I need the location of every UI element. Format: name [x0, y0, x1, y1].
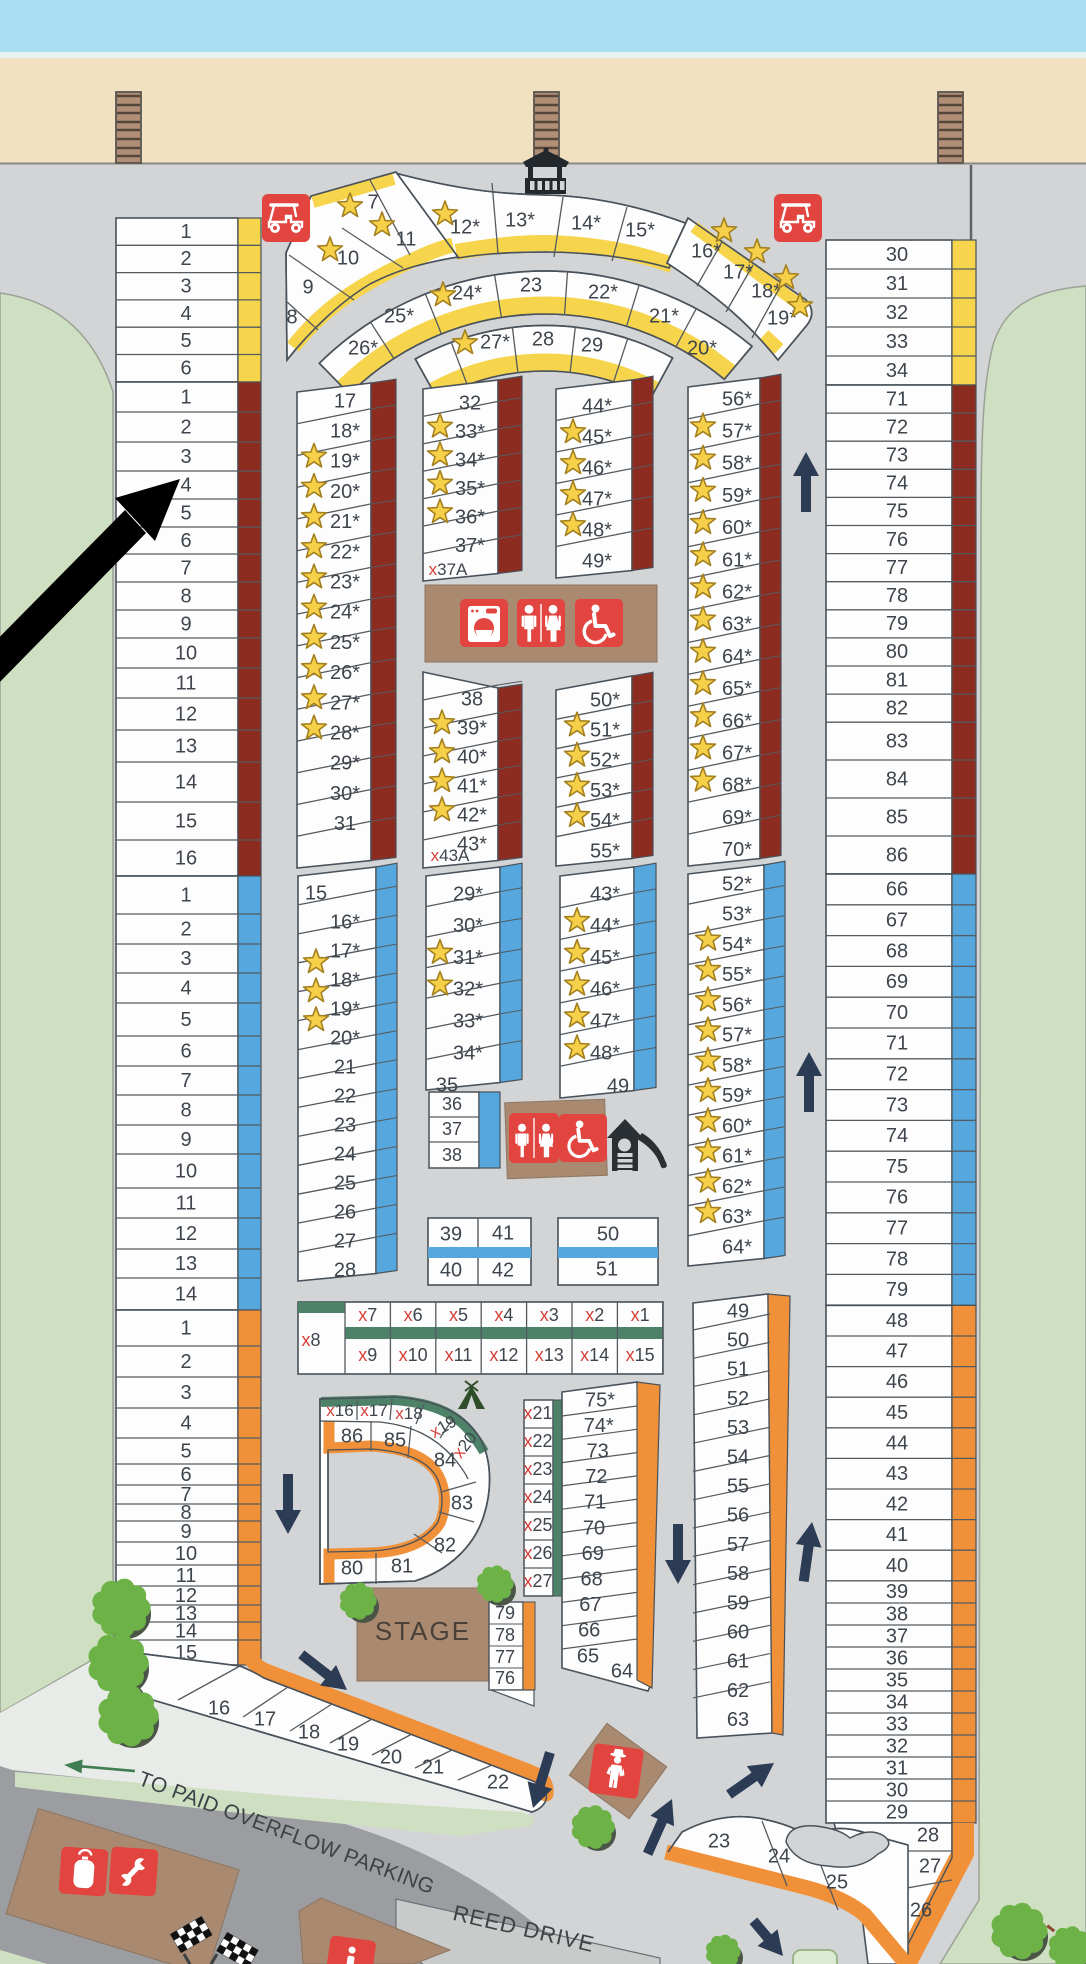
svg-text:22: 22 [487, 1771, 509, 1793]
svg-text:31: 31 [334, 813, 356, 835]
svg-text:41: 41 [492, 1222, 514, 1244]
svg-text:72: 72 [886, 1063, 908, 1085]
svg-text:20*: 20* [330, 1027, 360, 1049]
svg-text:21*: 21* [649, 305, 679, 327]
svg-text:x5: x5 [449, 1305, 468, 1325]
svg-text:68*: 68* [722, 775, 752, 797]
svg-text:63: 63 [727, 1709, 749, 1731]
svg-text:20: 20 [380, 1746, 402, 1768]
svg-text:68: 68 [886, 940, 908, 962]
svg-text:53: 53 [727, 1417, 749, 1439]
svg-text:10: 10 [175, 1160, 197, 1182]
svg-text:38: 38 [442, 1145, 462, 1165]
svg-text:4: 4 [180, 303, 191, 325]
svg-text:4: 4 [180, 474, 191, 496]
svg-text:26*: 26* [348, 337, 378, 359]
svg-text:77: 77 [886, 1217, 908, 1239]
svg-text:24: 24 [334, 1143, 356, 1165]
svg-text:82: 82 [434, 1534, 456, 1556]
svg-text:69*: 69* [722, 807, 752, 829]
svg-text:47: 47 [886, 1341, 908, 1363]
svg-text:5: 5 [180, 502, 191, 524]
svg-text:58: 58 [727, 1563, 749, 1585]
svg-text:40: 40 [886, 1555, 908, 1577]
svg-text:19*: 19* [330, 998, 360, 1020]
svg-text:28: 28 [917, 1824, 939, 1846]
svg-text:24*: 24* [452, 282, 482, 304]
svg-text:26: 26 [910, 1899, 932, 1921]
svg-text:33*: 33* [453, 1010, 483, 1032]
svg-text:3: 3 [180, 948, 191, 970]
svg-text:65: 65 [577, 1645, 599, 1667]
svg-text:18*: 18* [751, 280, 781, 302]
svg-text:42*: 42* [457, 804, 487, 826]
svg-text:15: 15 [175, 810, 197, 832]
svg-text:28: 28 [532, 328, 554, 350]
svg-text:70: 70 [886, 1002, 908, 1024]
svg-text:9: 9 [180, 1129, 191, 1151]
svg-text:17: 17 [254, 1708, 276, 1730]
svg-text:56*: 56* [722, 388, 752, 410]
svg-text:x4: x4 [494, 1305, 513, 1325]
svg-text:79: 79 [886, 613, 908, 635]
svg-text:45*: 45* [590, 947, 620, 969]
svg-text:80: 80 [341, 1557, 363, 1579]
svg-text:34*: 34* [455, 449, 485, 471]
svg-text:35*: 35* [455, 478, 485, 500]
svg-text:32: 32 [459, 392, 481, 414]
svg-text:58*: 58* [722, 1055, 752, 1077]
svg-text:20*: 20* [330, 481, 360, 503]
svg-text:16: 16 [175, 847, 197, 869]
svg-text:x10: x10 [399, 1345, 428, 1365]
svg-text:74: 74 [886, 1125, 908, 1147]
svg-text:71: 71 [886, 1033, 908, 1055]
svg-text:39: 39 [440, 1223, 462, 1245]
svg-text:49*: 49* [582, 550, 612, 572]
svg-text:11: 11 [396, 228, 417, 250]
svg-text:21: 21 [422, 1756, 444, 1778]
svg-text:59: 59 [727, 1592, 749, 1614]
svg-text:1: 1 [180, 386, 191, 408]
svg-text:33*: 33* [455, 421, 485, 443]
svg-text:32*: 32* [453, 979, 483, 1001]
svg-text:37*: 37* [455, 535, 485, 557]
svg-text:11: 11 [176, 672, 197, 694]
svg-text:21*: 21* [330, 511, 360, 533]
svg-text:59*: 59* [722, 1085, 752, 1107]
svg-text:17*: 17* [330, 940, 360, 962]
svg-text:19: 19 [337, 1733, 359, 1755]
svg-text:x15: x15 [626, 1345, 655, 1365]
svg-text:32: 32 [886, 302, 908, 324]
svg-text:28*: 28* [330, 722, 360, 744]
svg-text:3: 3 [180, 1382, 191, 1404]
svg-text:6: 6 [180, 1464, 191, 1486]
svg-text:30: 30 [886, 1779, 908, 1801]
svg-text:1: 1 [180, 221, 191, 243]
svg-text:78: 78 [495, 1625, 515, 1645]
svg-text:41*: 41* [457, 775, 487, 797]
svg-text:73: 73 [886, 445, 908, 467]
svg-text:13*: 13* [505, 209, 535, 231]
svg-text:36: 36 [886, 1647, 908, 1669]
svg-text:29*: 29* [453, 883, 483, 905]
svg-text:8: 8 [180, 585, 191, 607]
svg-text:53*: 53* [590, 780, 620, 802]
svg-text:8: 8 [286, 306, 297, 328]
svg-text:27: 27 [334, 1230, 356, 1252]
svg-text:x22: x22 [523, 1431, 552, 1451]
svg-text:67: 67 [886, 909, 908, 931]
svg-text:57: 57 [727, 1534, 749, 1556]
svg-text:18*: 18* [330, 420, 360, 442]
svg-text:33: 33 [886, 331, 908, 353]
svg-text:51*: 51* [590, 719, 620, 741]
svg-text:x12: x12 [489, 1345, 518, 1365]
svg-text:27: 27 [919, 1855, 941, 1877]
svg-text:x3: x3 [540, 1305, 559, 1325]
svg-text:x27: x27 [523, 1571, 552, 1591]
svg-text:38: 38 [461, 688, 483, 710]
svg-text:29: 29 [581, 334, 603, 356]
svg-text:25*: 25* [384, 305, 414, 327]
svg-text:11: 11 [176, 1565, 197, 1587]
svg-text:16*: 16* [691, 240, 721, 262]
svg-text:5: 5 [180, 1009, 191, 1031]
svg-text:48: 48 [886, 1310, 908, 1332]
svg-text:69: 69 [582, 1543, 604, 1565]
svg-text:66: 66 [578, 1620, 600, 1642]
svg-text:49: 49 [607, 1075, 629, 1097]
svg-text:31: 31 [886, 273, 908, 295]
svg-text:x18: x18 [395, 1404, 422, 1423]
svg-text:2: 2 [180, 918, 191, 940]
svg-text:27*: 27* [330, 692, 360, 714]
svg-text:54: 54 [727, 1446, 749, 1468]
svg-text:26: 26 [334, 1201, 356, 1223]
svg-text:29: 29 [886, 1801, 908, 1823]
svg-text:32: 32 [886, 1735, 908, 1757]
svg-text:31*: 31* [453, 947, 483, 969]
svg-text:26*: 26* [330, 662, 360, 684]
svg-text:17*: 17* [723, 261, 753, 283]
svg-text:52: 52 [727, 1388, 749, 1410]
svg-text:55*: 55* [722, 964, 752, 986]
svg-text:37: 37 [886, 1625, 908, 1647]
svg-text:14*: 14* [571, 212, 601, 234]
svg-text:1: 1 [180, 1317, 191, 1339]
svg-text:x2: x2 [585, 1305, 604, 1325]
svg-text:36*: 36* [455, 506, 485, 528]
svg-text:4: 4 [180, 1412, 191, 1434]
svg-text:10: 10 [175, 642, 197, 664]
svg-text:24*: 24* [330, 602, 360, 624]
svg-text:5: 5 [180, 1440, 191, 1462]
svg-text:63*: 63* [722, 1206, 752, 1228]
svg-text:x43A: x43A [431, 846, 470, 865]
svg-text:x14: x14 [580, 1345, 609, 1365]
svg-text:72: 72 [585, 1466, 607, 1488]
svg-text:35: 35 [886, 1669, 908, 1691]
svg-text:2: 2 [180, 416, 191, 438]
svg-text:75: 75 [886, 1156, 908, 1178]
svg-text:60: 60 [727, 1621, 749, 1643]
svg-text:x1: x1 [631, 1305, 650, 1325]
svg-text:24: 24 [768, 1845, 790, 1867]
svg-text:18*: 18* [330, 969, 360, 991]
svg-text:57*: 57* [722, 1025, 752, 1047]
svg-text:45: 45 [886, 1402, 908, 1424]
svg-text:16*: 16* [330, 911, 360, 933]
svg-text:34*: 34* [453, 1042, 483, 1064]
svg-text:13: 13 [175, 735, 197, 757]
svg-text:77: 77 [886, 557, 908, 579]
svg-text:39: 39 [886, 1581, 908, 1603]
svg-text:86: 86 [341, 1425, 363, 1447]
svg-text:44*: 44* [590, 915, 620, 937]
svg-text:54*: 54* [722, 934, 752, 956]
svg-text:51: 51 [596, 1258, 618, 1280]
svg-text:9: 9 [302, 276, 313, 298]
svg-text:40: 40 [440, 1259, 462, 1281]
svg-text:57*: 57* [722, 420, 752, 442]
svg-text:60*: 60* [722, 1115, 752, 1137]
svg-text:50: 50 [597, 1223, 619, 1245]
svg-text:15*: 15* [625, 219, 655, 241]
svg-text:86: 86 [886, 844, 908, 866]
svg-text:66: 66 [886, 879, 908, 901]
svg-text:29*: 29* [330, 753, 360, 775]
svg-text:62: 62 [727, 1680, 749, 1702]
svg-text:23: 23 [520, 274, 542, 296]
svg-text:12*: 12* [450, 216, 480, 238]
svg-text:1: 1 [180, 884, 191, 906]
svg-text:x26: x26 [523, 1543, 552, 1563]
svg-text:59*: 59* [722, 485, 752, 507]
svg-text:x11: x11 [445, 1345, 473, 1365]
svg-text:53*: 53* [722, 904, 752, 926]
svg-text:58*: 58* [722, 453, 752, 475]
svg-text:75*: 75* [585, 1389, 615, 1411]
svg-text:48*: 48* [590, 1042, 620, 1064]
svg-text:56*: 56* [722, 994, 752, 1016]
svg-text:50*: 50* [590, 689, 620, 711]
svg-text:10: 10 [175, 1543, 197, 1565]
svg-text:x23: x23 [523, 1459, 552, 1479]
svg-text:14: 14 [175, 1283, 197, 1305]
svg-text:16: 16 [208, 1697, 230, 1719]
svg-text:x24: x24 [523, 1487, 552, 1507]
svg-text:71: 71 [886, 388, 908, 410]
svg-text:64: 64 [611, 1660, 633, 1682]
svg-text:7: 7 [367, 191, 378, 213]
svg-text:78: 78 [886, 1248, 908, 1270]
svg-text:69: 69 [886, 971, 908, 993]
svg-text:62*: 62* [722, 1176, 752, 1198]
svg-text:9: 9 [180, 1521, 191, 1543]
svg-text:44*: 44* [582, 395, 612, 417]
svg-text:12: 12 [175, 1223, 197, 1245]
svg-text:74*: 74* [584, 1415, 614, 1437]
svg-text:38: 38 [886, 1603, 908, 1625]
svg-text:12: 12 [175, 703, 197, 725]
svg-text:7: 7 [180, 557, 191, 579]
svg-text:25: 25 [334, 1172, 356, 1194]
svg-text:30: 30 [886, 244, 908, 266]
svg-text:28: 28 [334, 1259, 356, 1281]
svg-text:52*: 52* [722, 873, 752, 895]
svg-text:76: 76 [886, 529, 908, 551]
svg-text:84: 84 [434, 1449, 456, 1471]
svg-text:46: 46 [886, 1371, 908, 1393]
svg-text:34: 34 [886, 1691, 908, 1713]
svg-text:74: 74 [886, 473, 908, 495]
svg-text:70*: 70* [722, 839, 752, 861]
svg-text:7: 7 [180, 1070, 191, 1092]
svg-text:72: 72 [886, 416, 908, 438]
svg-text:6: 6 [180, 530, 191, 552]
svg-text:64*: 64* [722, 1236, 752, 1258]
svg-text:30*: 30* [453, 915, 483, 937]
svg-text:21: 21 [334, 1056, 356, 1078]
svg-text:43*: 43* [590, 883, 620, 905]
svg-text:22*: 22* [588, 281, 618, 303]
svg-text:71: 71 [584, 1492, 606, 1514]
svg-text:68: 68 [580, 1568, 602, 1590]
svg-text:5: 5 [180, 330, 191, 352]
svg-text:44: 44 [886, 1432, 908, 1454]
svg-text:2: 2 [180, 1351, 191, 1373]
svg-text:64*: 64* [722, 646, 752, 668]
svg-text:6: 6 [180, 358, 191, 380]
svg-text:42: 42 [492, 1259, 514, 1281]
svg-text:x17: x17 [360, 1401, 387, 1420]
svg-text:80: 80 [886, 641, 908, 663]
svg-text:8: 8 [180, 1099, 191, 1121]
svg-text:47*: 47* [590, 1010, 620, 1032]
svg-text:x13: x13 [535, 1345, 564, 1365]
svg-text:3: 3 [180, 446, 191, 468]
svg-text:83: 83 [886, 730, 908, 752]
svg-text:37: 37 [442, 1119, 462, 1139]
svg-text:61*: 61* [722, 1146, 752, 1168]
svg-text:85: 85 [886, 806, 908, 828]
svg-text:85: 85 [384, 1429, 406, 1451]
svg-text:23: 23 [334, 1114, 356, 1136]
svg-text:18: 18 [298, 1721, 320, 1743]
svg-text:x16: x16 [326, 1401, 353, 1420]
svg-text:x21: x21 [523, 1403, 552, 1423]
svg-text:76: 76 [886, 1187, 908, 1209]
svg-text:40*: 40* [457, 746, 487, 768]
svg-text:34: 34 [886, 360, 908, 382]
svg-text:65*: 65* [722, 678, 752, 700]
svg-text:83: 83 [451, 1492, 473, 1514]
svg-text:25*: 25* [330, 632, 360, 654]
svg-text:33: 33 [886, 1713, 908, 1735]
svg-text:54*: 54* [590, 810, 620, 832]
svg-text:61: 61 [727, 1651, 749, 1673]
svg-text:31: 31 [886, 1757, 908, 1779]
svg-text:78: 78 [886, 585, 908, 607]
svg-text:x6: x6 [404, 1305, 423, 1325]
svg-text:15: 15 [305, 882, 327, 904]
svg-text:77: 77 [495, 1647, 515, 1667]
svg-text:x37A: x37A [429, 560, 468, 579]
svg-text:22*: 22* [330, 541, 360, 563]
svg-text:66*: 66* [722, 710, 752, 732]
svg-text:47*: 47* [582, 488, 612, 510]
svg-text:25: 25 [826, 1871, 848, 1893]
svg-text:13: 13 [175, 1253, 197, 1275]
svg-text:x7: x7 [358, 1305, 377, 1325]
svg-text:55: 55 [727, 1475, 749, 1497]
svg-text:46*: 46* [582, 457, 612, 479]
svg-text:20*: 20* [687, 337, 717, 359]
svg-text:56: 56 [727, 1505, 749, 1527]
svg-text:9: 9 [180, 613, 191, 635]
svg-text:48*: 48* [582, 519, 612, 541]
svg-text:45*: 45* [582, 426, 612, 448]
svg-text:11: 11 [176, 1192, 197, 1214]
svg-text:2: 2 [180, 248, 191, 270]
svg-text:19*: 19* [330, 451, 360, 473]
svg-text:63*: 63* [722, 614, 752, 636]
svg-text:55*: 55* [590, 840, 620, 862]
svg-text:67*: 67* [722, 742, 752, 764]
svg-text:x25: x25 [523, 1515, 552, 1535]
svg-text:75: 75 [886, 501, 908, 523]
svg-text:76: 76 [495, 1668, 515, 1688]
svg-text:27*: 27* [480, 331, 510, 353]
svg-text:22: 22 [334, 1085, 356, 1107]
svg-text:50: 50 [727, 1329, 749, 1351]
svg-text:81: 81 [886, 669, 908, 691]
svg-text:19*: 19* [767, 307, 797, 329]
svg-text:23: 23 [708, 1830, 730, 1852]
svg-text:61*: 61* [722, 549, 752, 571]
svg-text:84: 84 [886, 768, 908, 790]
svg-text:49: 49 [727, 1300, 749, 1322]
svg-text:60*: 60* [722, 517, 752, 539]
svg-text:30*: 30* [330, 783, 360, 805]
svg-text:46*: 46* [590, 979, 620, 1001]
svg-text:23*: 23* [330, 571, 360, 593]
svg-text:14: 14 [175, 771, 197, 793]
svg-text:62*: 62* [722, 581, 752, 603]
svg-text:67: 67 [579, 1594, 601, 1616]
svg-text:41: 41 [886, 1524, 908, 1546]
svg-text:81: 81 [391, 1555, 413, 1577]
svg-text:6: 6 [180, 1040, 191, 1062]
svg-text:51: 51 [727, 1359, 749, 1381]
svg-text:43: 43 [886, 1463, 908, 1485]
svg-text:14: 14 [175, 1620, 197, 1642]
svg-text:STAGE: STAGE [375, 1616, 471, 1646]
svg-text:73: 73 [586, 1440, 608, 1462]
svg-text:73: 73 [886, 1094, 908, 1116]
svg-text:3: 3 [180, 276, 191, 298]
svg-text:10: 10 [337, 247, 359, 269]
svg-text:70: 70 [583, 1517, 605, 1539]
svg-text:4: 4 [180, 977, 191, 999]
svg-text:36: 36 [442, 1094, 462, 1114]
svg-text:52*: 52* [590, 750, 620, 772]
svg-text:42: 42 [886, 1494, 908, 1516]
svg-text:79: 79 [886, 1279, 908, 1301]
svg-text:82: 82 [886, 697, 908, 719]
